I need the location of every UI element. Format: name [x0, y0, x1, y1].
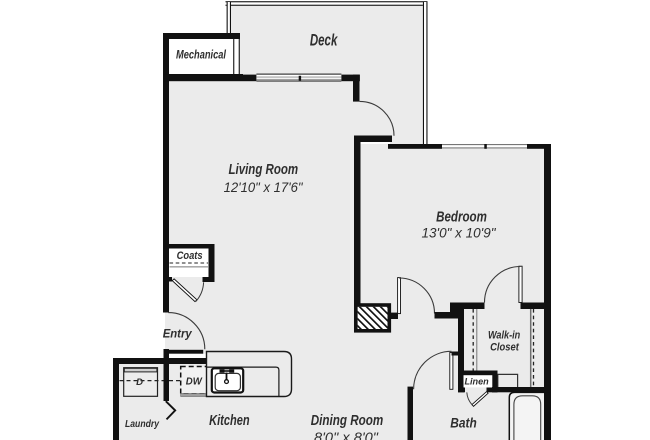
svg-text:DW: DW [186, 376, 203, 387]
svg-text:Walk-in: Walk-in [488, 329, 520, 341]
svg-text:Mechanical: Mechanical [176, 50, 227, 62]
svg-text:Laundry: Laundry [125, 419, 160, 430]
svg-text:D: D [136, 377, 143, 388]
svg-text:Dining Room: Dining Room [311, 413, 384, 429]
svg-text:12'10" x 17'6": 12'10" x 17'6" [224, 180, 304, 195]
svg-text:Living Room: Living Room [229, 162, 299, 178]
svg-text:Deck: Deck [310, 30, 339, 49]
svg-text:Closet: Closet [490, 341, 520, 353]
svg-text:Bedroom: Bedroom [436, 210, 487, 226]
svg-text:Entry: Entry [163, 327, 193, 341]
svg-text:Linen: Linen [464, 377, 488, 388]
svg-text:Bath: Bath [450, 415, 477, 431]
svg-text:Kitchen: Kitchen [209, 413, 250, 429]
svg-text:Coats: Coats [177, 250, 203, 262]
svg-text:13'0" x 10'9": 13'0" x 10'9" [422, 226, 497, 241]
svg-text:8'0" x 8'0": 8'0" x 8'0" [314, 430, 379, 440]
